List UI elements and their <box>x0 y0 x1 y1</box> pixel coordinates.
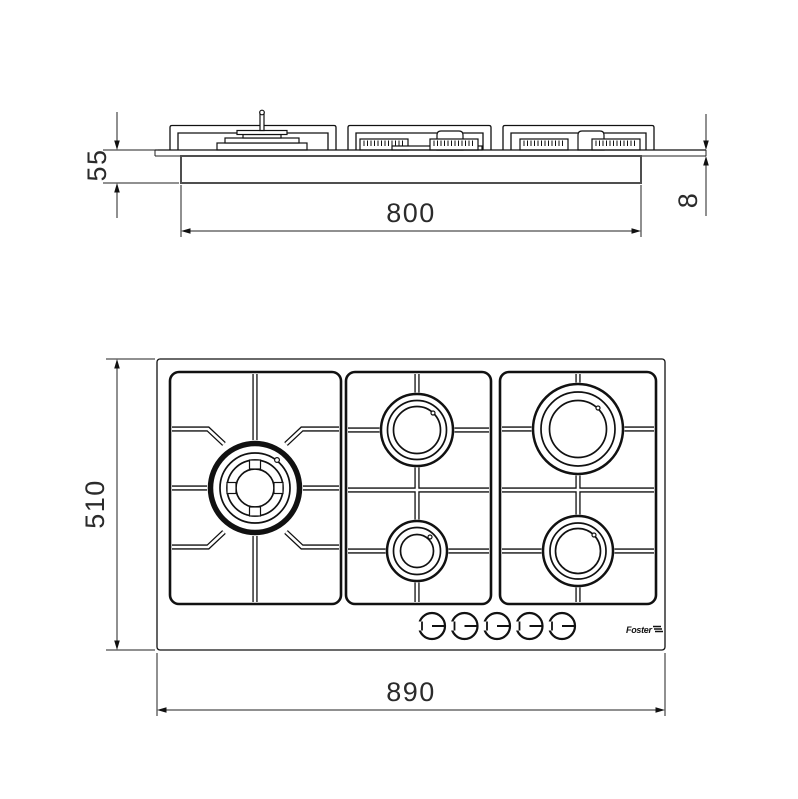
plan-view: Foster 510 890 <box>80 359 665 716</box>
technical-drawing-page: 55 800 8 <box>0 0 798 799</box>
dim-510-label: 510 <box>80 479 110 529</box>
dim-55-label: 55 <box>82 148 112 181</box>
dimension-8: 8 <box>673 114 709 216</box>
dimension-510: 510 <box>80 359 155 650</box>
dimension-800: 800 <box>181 185 641 237</box>
dimension-890: 890 <box>157 653 665 716</box>
wok-burner <box>207 440 303 536</box>
dim-800-label: 800 <box>386 198 436 228</box>
dimension-55: 55 <box>82 112 179 218</box>
side-wok-burner <box>217 110 307 150</box>
dim-8-label: 8 <box>673 192 703 209</box>
brand-logo: Foster <box>626 625 663 635</box>
side-burner-head-4 <box>592 139 640 150</box>
dim-890-label: 890 <box>386 677 436 707</box>
burner-middle-bottom <box>386 520 449 583</box>
burner-right-top <box>532 383 625 476</box>
control-knob-1 <box>416 613 445 639</box>
control-knob-5 <box>546 613 575 639</box>
control-knob-2 <box>449 613 478 639</box>
control-knob-3 <box>481 613 510 639</box>
burner-middle-top <box>380 393 455 468</box>
brand-logo-emblem <box>653 627 663 632</box>
control-knobs <box>416 613 575 639</box>
side-housing-box <box>181 156 641 183</box>
control-knob-4 <box>514 613 543 639</box>
burner-right-bottom <box>542 515 615 588</box>
brand-logo-text: Foster <box>626 625 653 635</box>
side-view: 55 800 8 <box>82 110 709 237</box>
side-burner-heads <box>360 131 640 150</box>
